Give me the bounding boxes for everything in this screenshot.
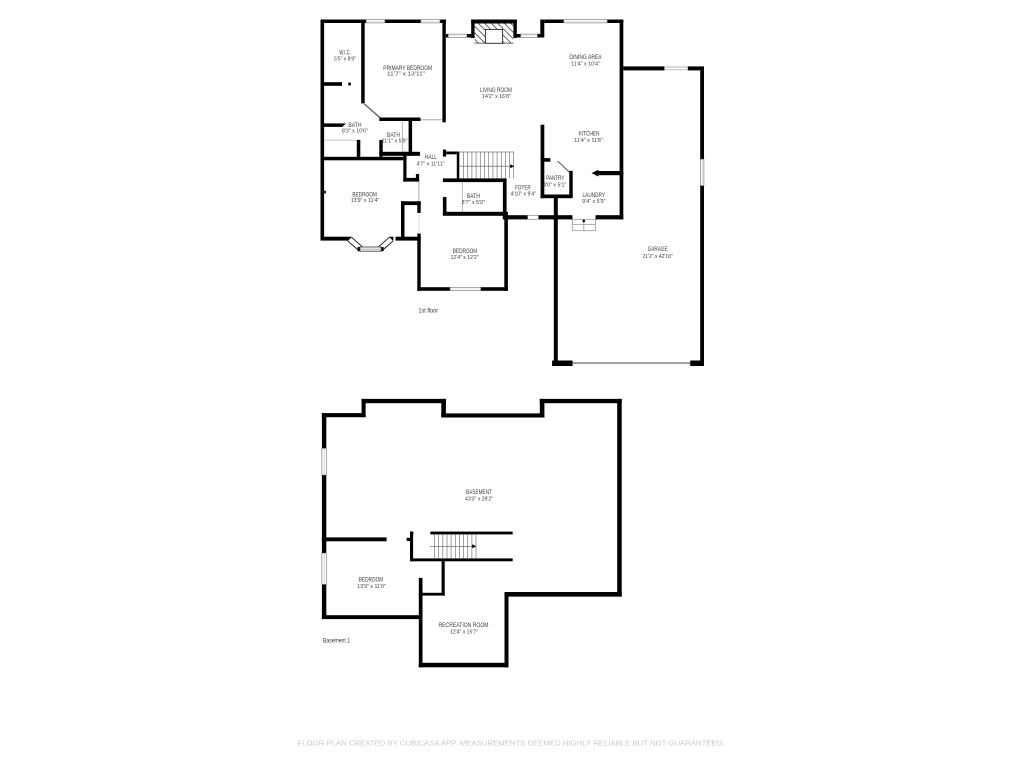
svg-text:PANTRY: PANTRY [546,176,564,182]
svg-text:12'4" x 15'7": 12'4" x 15'7" [450,630,478,636]
svg-text:11'4" x 10'4": 11'4" x 10'4" [571,62,600,68]
svg-text:11'1" x 5'9": 11'1" x 5'9" [382,138,408,144]
svg-text:14'2" x 16'8": 14'2" x 16'8" [482,94,511,100]
svg-text:BATH: BATH [467,194,480,200]
svg-text:Basement 1: Basement 1 [323,639,351,645]
svg-text:LIVING ROOM: LIVING ROOM [480,88,512,94]
svg-text:4'0" x 5'1": 4'0" x 5'1" [543,183,566,189]
svg-text:5'5" x 8'9": 5'5" x 8'9" [334,56,356,62]
svg-text:8'3" x 10'6": 8'3" x 10'6" [342,128,368,134]
svg-text:4'10" x 9'4": 4'10" x 9'4" [511,192,537,198]
svg-text:9'4" x 5'9": 9'4" x 5'9" [582,199,605,205]
svg-text:BEDROOM: BEDROOM [359,578,384,584]
svg-text:GARAGE: GARAGE [648,247,668,253]
svg-text:4'7" x 11'11": 4'7" x 11'11" [417,162,445,168]
svg-text:FLOOR PLAN CREATED BY CUBICASA: FLOOR PLAN CREATED BY CUBICASA APP. MEAS… [298,739,725,748]
svg-text:BASEMENT: BASEMENT [466,490,492,496]
svg-text:FOYER: FOYER [515,185,531,191]
svg-text:13'9" x 11'4": 13'9" x 11'4" [351,198,380,204]
svg-text:11'7" x 13'11": 11'7" x 13'11" [387,72,425,78]
svg-text:KITCHEN: KITCHEN [579,132,600,138]
svg-text:43'3" x 28'2": 43'3" x 28'2" [465,497,493,503]
svg-text:1st floor: 1st floor [418,309,438,315]
svg-text:21'2" x 42'10": 21'2" x 42'10" [643,254,673,260]
svg-text:LAUNDRY: LAUNDRY [583,193,606,199]
svg-text:11'4" x 11'8": 11'4" x 11'8" [574,138,603,144]
svg-text:RECREATION ROOM: RECREATION ROOM [439,623,489,629]
svg-text:HALL: HALL [425,155,438,161]
svg-text:13'9" x 11'0": 13'9" x 11'0" [357,584,386,590]
svg-text:DINING AREA: DINING AREA [569,55,601,61]
svg-text:12'4" x 12'2": 12'4" x 12'2" [451,255,479,261]
svg-text:8'7" x 5'0": 8'7" x 5'0" [462,200,485,206]
